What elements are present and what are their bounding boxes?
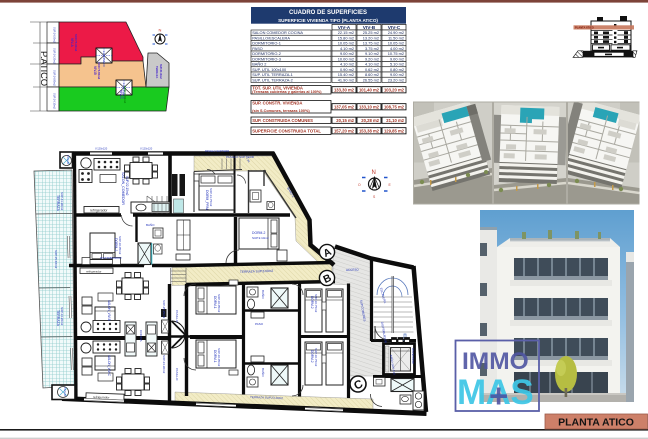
svg-text:26.55 m2: 26.55 m2 [363,77,379,82]
svg-text:VIV-B: VIV-B [93,66,97,75]
svg-text:9.00 m2: 9.00 m2 [390,72,404,77]
svg-text:SUP.9.10m2: SUP.9.10m2 [252,236,269,240]
svg-text:133,10 m2: 133,10 m2 [359,104,380,109]
svg-text:SALON_VIV-C: SALON_VIV-C [107,355,111,377]
svg-text:BAÑO: BAÑO [261,368,266,377]
svg-text:SUP.14.20m2: SUP.14.20m2 [60,307,64,326]
svg-text:DORMITORIO-2: DORMITORIO-2 [252,51,281,56]
svg-text:SALON COMEDOR COCINA: SALON COMEDOR COCINA [252,30,303,35]
svg-text:129,85 m2: 129,85 m2 [384,128,405,133]
svg-text:15.40 m2: 15.40 m2 [338,72,354,77]
svg-text:8.60 m2: 8.60 m2 [365,72,379,77]
svg-text:24.90 m2: 24.90 m2 [388,30,404,35]
svg-text:15.80 m2: 15.80 m2 [338,35,354,40]
svg-text:N: N [372,170,376,176]
svg-text:PLANTA ATICO: PLANTA ATICO [558,416,634,428]
svg-text:SUPERFICIE CONSTRUIDA TOTAL: SUPERFICIE CONSTRUIDA TOTAL [252,128,321,133]
svg-text:13.75 m2: 13.75 m2 [363,41,379,46]
svg-text:11.50 m2: 11.50 m2 [388,35,404,40]
svg-text:BAÑO 2: BAÑO 2 [252,62,266,67]
svg-text:SUP.10.75m2: SUP.10.75m2 [314,348,318,367]
svg-text:SALON_VIV-B: SALON_VIV-B [107,300,111,321]
svg-text:21,10 m2: 21,10 m2 [386,118,404,123]
svg-text:10.05 m2: 10.05 m2 [338,41,354,46]
svg-text:VIV-C: VIV-C [119,90,123,99]
svg-text:V.120x120: V.120x120 [95,147,108,151]
svg-text:SUP.10.05m2: SUP.10.05m2 [217,294,221,313]
svg-text:4.10 m2: 4.10 m2 [365,62,379,67]
svg-text:137,05 m2: 137,05 m2 [334,104,355,109]
svg-text:20,28 m2: 20,28 m2 [361,118,379,123]
svg-text:LUCERNARIO: LUCERNARIO [102,51,105,67]
svg-text:DISTRIBUIDOR: DISTRIBUIDOR [100,256,122,260]
svg-text:DORM-1: DORM-1 [213,350,217,363]
svg-text:10.75 m2: 10.75 m2 [388,51,404,56]
svg-text:DORM-2: DORM-2 [310,350,314,363]
svg-text:DORM-2: DORM-2 [252,231,265,235]
svg-text:SUP.45.10m2: SUP.45.10m2 [159,64,162,79]
svg-text:CUADRO DE SUPERFICIES: CUADRO DE SUPERFICIES [289,10,367,16]
svg-text:SUP.14.10m2: SUP.14.10m2 [53,93,57,109]
svg-text:refrigerador: refrigerador [90,209,108,213]
svg-text:4.10 m2: 4.10 m2 [340,62,354,67]
svg-text:SUP.41.90m2: SUP.41.90m2 [60,192,64,211]
svg-text:SUP. UTIL TERRAZA-2: SUP. UTIL TERRAZA-2 [252,77,293,82]
svg-text:PASO: PASO [255,322,264,326]
svg-text:SUP.13.75m2: SUP.13.75m2 [209,188,213,207]
svg-text:133,30 m2: 133,30 m2 [334,87,355,92]
svg-text:N: N [159,28,162,33]
svg-text:10.00 m2: 10.00 m2 [338,56,354,61]
svg-text:PASILLO SUP.TERR: PASILLO SUP.TERR [226,155,255,159]
svg-text:DORM_PPAL: DORM_PPAL [205,190,209,211]
svg-text:9.20 m2: 9.20 m2 [365,56,379,61]
svg-text:SUP. UTIL 100x100: SUP. UTIL 100x100 [252,67,287,72]
svg-text:+: + [489,377,508,414]
svg-text:103,20 m2: 103,20 m2 [384,87,405,92]
svg-text:9.10 m2: 9.10 m2 [365,51,379,56]
svg-text:25.25 m2: 25.25 m2 [363,30,379,35]
svg-text:ACCESO: ACCESO [346,268,359,272]
svg-text:BAÑO: BAÑO [261,290,266,299]
svg-text:20,15 m2: 20,15 m2 [336,118,354,123]
svg-text:DORM-1: DORM-1 [213,296,217,309]
svg-text:157,20 m2: 157,20 m2 [334,128,355,133]
svg-text:PASILLO/ESCALERA: PASILLO/ESCALERA [252,35,290,40]
svg-text:V.120x120: V.120x120 [140,147,153,151]
svg-text:BAÑO: BAÑO [146,222,155,227]
svg-text:101,40 m2: 101,40 m2 [359,87,380,92]
svg-text:SUP.10.75m2: SUP.10.75m2 [314,294,318,313]
svg-text:SUP.15.40m2: SUP.15.40m2 [54,250,58,269]
svg-text:COCINA: COCINA [139,330,143,342]
svg-text:(sin S.Comunes, terrazas 100%): (sin S.Comunes, terrazas 100%) [252,109,310,113]
svg-text:0.62 m2: 0.62 m2 [365,67,379,72]
svg-text:SUP.14.80m2: SUP.14.80m2 [53,70,57,86]
svg-text:SUPERFICIE VIVIENDA TIPO (PLA: SUPERFICIE VIVIENDA TIPO (PLANTA ATICO) [278,18,378,23]
svg-text:refrigerador: refrigerador [86,270,102,274]
svg-text:10.05 m2: 10.05 m2 [388,41,404,46]
svg-text:O: O [358,183,361,187]
svg-text:SUP.75.40m2: SUP.75.40m2 [74,34,78,52]
svg-text:5.10 m2: 5.10 m2 [390,62,404,67]
svg-text:SUP.25.25m2: SUP.25.25m2 [162,300,166,319]
svg-text:IMMO: IMMO [462,348,529,375]
svg-text:SUP.73.80m2: SUP.73.80m2 [97,62,101,80]
svg-text:9.00 m2: 9.00 m2 [390,56,404,61]
svg-text:SUP.14.20m2: SUP.14.20m2 [53,48,57,64]
svg-text:PASO: PASO [252,46,263,51]
svg-text:ASCENSOR: ASCENSOR [411,348,415,364]
svg-text:SUP.14.50m2: SUP.14.50m2 [53,27,57,43]
svg-text:(Terrazas cubiertas y galerias: (Terrazas cubiertas y galerias al 100%) [252,90,322,94]
svg-text:SUP.10.05m2: SUP.10.05m2 [217,348,221,367]
svg-text:SUP. CONSTRUIDA COMUNES: SUP. CONSTRUIDA COMUNES [252,118,313,123]
svg-text:SUP.22.15m2: SUP.22.15m2 [125,176,129,196]
svg-text:TERRAZA: TERRAZA [56,310,60,327]
svg-text:SALON_COMEDOR: SALON_COMEDOR [121,172,125,205]
svg-text:PASILLO SUP.TERR: PASILLO SUP.TERR [205,149,229,153]
svg-text:23.20 m2: 23.20 m2 [388,77,404,82]
svg-text:0.80 m2: 0.80 m2 [390,67,404,72]
svg-text:9.00 m2: 9.00 m2 [340,51,354,56]
svg-text:SUP.10.05m2: SUP.10.05m2 [118,236,122,255]
svg-text:P.10x40: P.10x40 [63,387,67,397]
svg-text:DORM-1: DORM-1 [114,238,118,251]
svg-text:DORMITORIO-1: DORMITORIO-1 [252,41,281,46]
svg-text:41.90 m2: 41.90 m2 [338,77,354,82]
svg-text:4.00 m2: 4.00 m2 [390,46,404,51]
svg-text:22.15 m2: 22.15 m2 [338,30,354,35]
svg-text:PLANTA ATICO: PLANTA ATICO [575,26,594,30]
svg-text:P.10x40: P.10x40 [66,155,70,165]
svg-text:SUP.24.90m2: SUP.24.90m2 [162,355,166,374]
svg-text:108,75 m2: 108,75 m2 [384,104,405,109]
svg-text:0.90 m2: 0.90 m2 [340,67,354,72]
svg-text:4.10 m2: 4.10 m2 [340,46,354,51]
svg-text:SUP.73.80m2: SUP.73.80m2 [123,86,127,104]
svg-text:SUP. UTIL TERRAZA-1: SUP. UTIL TERRAZA-1 [252,72,293,77]
svg-text:VIV-A: VIV-A [70,38,74,47]
svg-text:TERRAZA: TERRAZA [155,66,159,79]
svg-text:PASILLO: PASILLO [175,310,179,323]
svg-text:DORMITORIO-3: DORMITORIO-3 [252,56,281,61]
svg-text:153,38 m2: 153,38 m2 [359,128,380,133]
svg-text:DORM-2: DORM-2 [310,296,314,309]
svg-text:PASILLO: PASILLO [175,368,179,381]
svg-text:TERRAZA: TERRAZA [56,195,60,212]
svg-text:SUP. CONSTR. VIVIENDA: SUP. CONSTR. VIVIENDA [252,100,302,105]
svg-text:3.75 m2: 3.75 m2 [365,46,379,51]
svg-text:13.20 m2: 13.20 m2 [363,35,379,40]
